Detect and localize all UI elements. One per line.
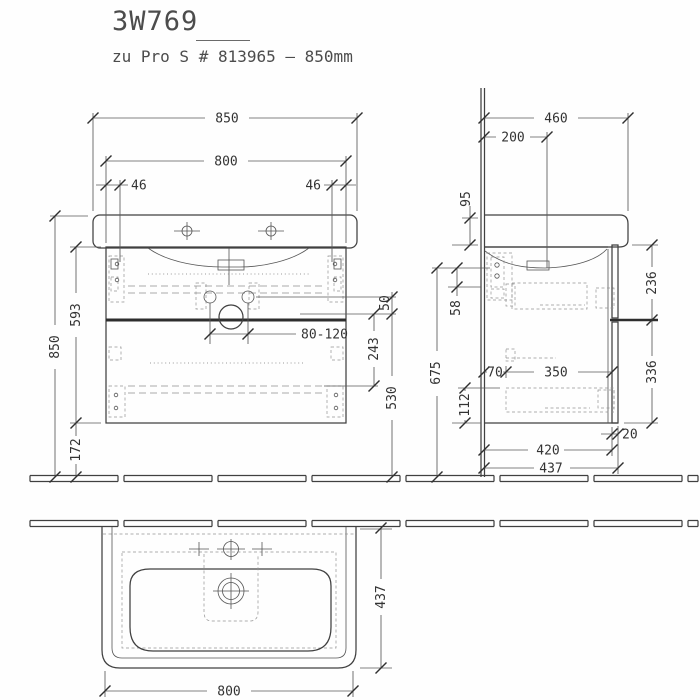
dim-fixing-offset-right: 46	[305, 179, 321, 194]
upper-drawer-front	[612, 245, 618, 318]
dim-bracket-span: 58	[449, 300, 464, 316]
dim-tap-setback: 200	[501, 131, 524, 146]
dim-total-height: 850	[48, 335, 63, 358]
plan-view	[102, 527, 356, 668]
bowl-outline	[148, 248, 309, 267]
bowl-plan	[130, 569, 331, 651]
wall-line-side	[481, 88, 485, 477]
dim-bottom-clearance: 172	[69, 438, 84, 461]
dim-plan-depth: 437	[374, 585, 389, 608]
basin-plan-rim	[112, 527, 346, 658]
washbasin-front	[93, 215, 357, 248]
dim-drawer-span: 243	[367, 337, 382, 360]
dim-rail-length: 350	[544, 366, 567, 381]
technical-drawing-sheet: 3W769 zu Pro S # 813965 – 850mm	[0, 0, 700, 700]
dim-lower-front-height: 336	[645, 360, 660, 383]
drain-side	[527, 261, 549, 270]
dim-basin-width: 850	[215, 112, 238, 127]
dim-plan-width: 800	[217, 685, 240, 700]
dim-fixing-offset-left: 46	[131, 179, 147, 194]
vanity-dimension-drawing: 850 800 46 46 80-120 850 593 172 50 243 …	[0, 0, 700, 700]
overflow-plan	[213, 573, 249, 609]
wall-line-plan	[30, 521, 698, 527]
dimension-lines	[50, 113, 658, 697]
drain-box	[218, 260, 244, 270]
washbasin-side	[485, 215, 628, 247]
dim-carcass-depth: 420	[536, 444, 559, 459]
dimension-labels: 850 800 46 46 80-120 850 593 172 50 243 …	[48, 112, 660, 700]
dim-cabinet-width: 800	[214, 155, 237, 170]
dim-trap-offset: 50	[378, 295, 393, 311]
dimension-ticks	[50, 113, 658, 697]
siphon-cutout	[204, 291, 254, 329]
tap-hole-plan	[189, 539, 272, 560]
dim-basin-depth: 460	[544, 112, 567, 127]
dim-divider-height: 530	[385, 386, 400, 409]
dim-mount-height: 675	[429, 361, 444, 384]
dim-rail-setback: 70	[487, 366, 503, 381]
dim-drain-range: 80-120	[301, 328, 348, 343]
dim-overall-depth: 437	[539, 462, 562, 477]
tap-hole-marks	[174, 222, 284, 240]
floor-line	[30, 476, 698, 482]
dim-front-thickness: 20	[622, 428, 638, 443]
side-hardware-hidden	[487, 253, 614, 412]
cabinet-hidden-plan	[122, 552, 336, 648]
dim-upper-front-height: 236	[645, 271, 660, 294]
side-section-view	[481, 88, 628, 477]
dim-lower-clearance: 112	[458, 393, 473, 416]
front-elevation-view	[93, 215, 357, 423]
dim-apron-height: 95	[459, 191, 474, 207]
dim-cabinet-height: 593	[69, 303, 84, 326]
bowl-side	[485, 249, 607, 268]
basin-plan-outer	[102, 527, 356, 668]
